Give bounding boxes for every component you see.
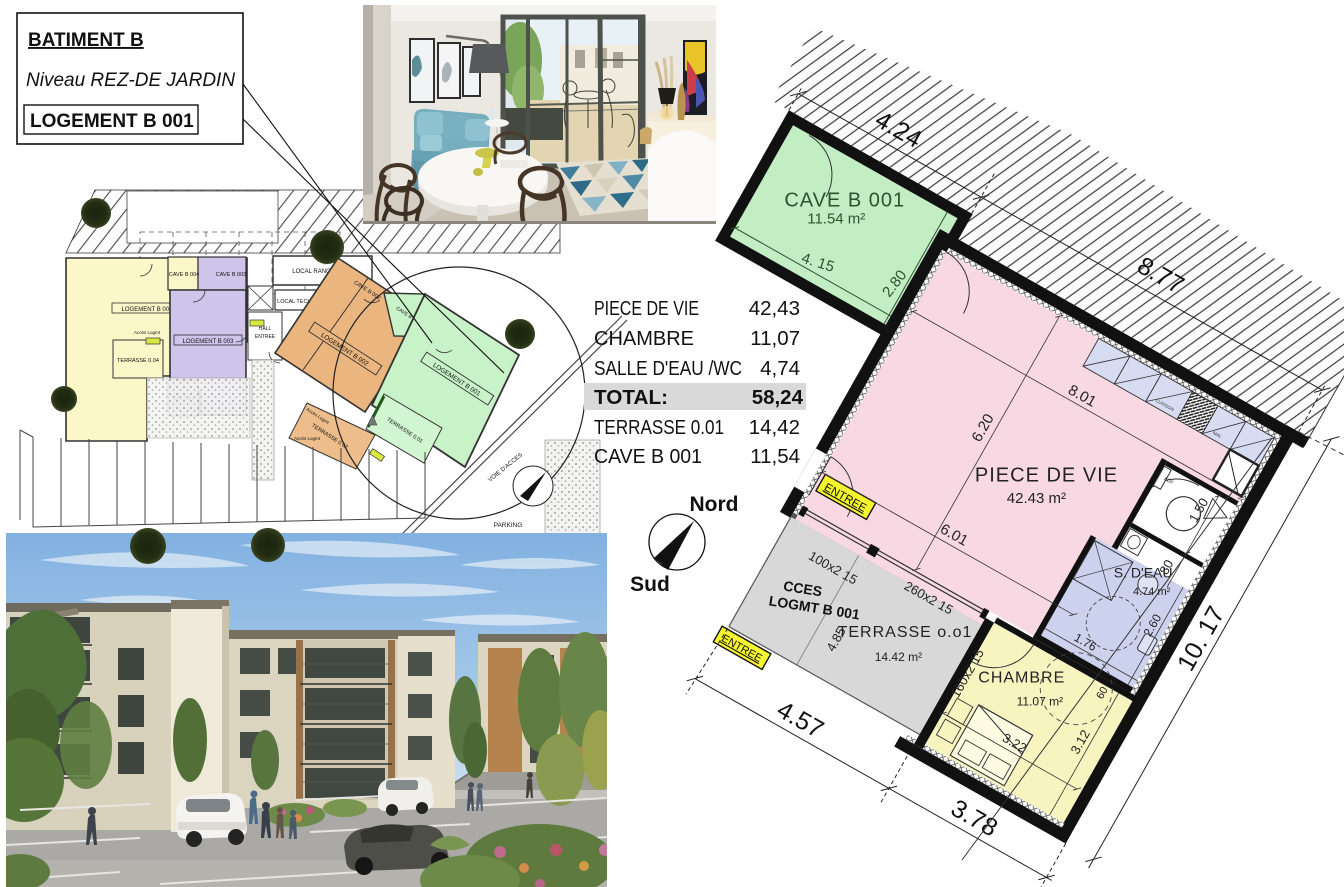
svg-text:Accès Logmt: Accès Logmt bbox=[134, 330, 161, 335]
svg-text:Accès Logmt: Accès Logmt bbox=[294, 436, 321, 441]
svg-text:14,42: 14,42 bbox=[749, 416, 800, 439]
svg-text:4.57: 4.57 bbox=[772, 696, 828, 744]
svg-text:11.54 m²: 11.54 m² bbox=[807, 210, 865, 227]
svg-text:Sud: Sud bbox=[630, 573, 670, 596]
svg-text:CHAMBRE: CHAMBRE bbox=[594, 327, 694, 350]
svg-text:Nord: Nord bbox=[690, 493, 739, 516]
svg-text:TERRASSE o.o1: TERRASSE o.o1 bbox=[838, 624, 973, 641]
svg-text:14.42 m²: 14.42 m² bbox=[875, 650, 922, 664]
svg-text:PARKING: PARKING bbox=[494, 522, 523, 529]
svg-text:LOGEMENT B 003: LOGEMENT B 003 bbox=[183, 339, 235, 345]
svg-text:LOGEMENT B 001: LOGEMENT B 001 bbox=[30, 111, 194, 132]
svg-text:BATIMENT B: BATIMENT B bbox=[28, 30, 144, 51]
svg-text:11,07: 11,07 bbox=[750, 327, 800, 350]
svg-text:CAVE B 001: CAVE B 001 bbox=[594, 445, 702, 468]
svg-text:LOGEMENT B 004: LOGEMENT B 004 bbox=[122, 307, 174, 313]
svg-text:CAVE B 001: CAVE B 001 bbox=[784, 189, 905, 211]
svg-text:ENTREE: ENTREE bbox=[255, 334, 276, 340]
svg-text:42,43: 42,43 bbox=[749, 297, 800, 320]
svg-text:PIECE DE VIE: PIECE DE VIE bbox=[975, 464, 1118, 486]
svg-text:Niveau REZ-DE JARDIN: Niveau REZ-DE JARDIN bbox=[26, 70, 235, 91]
svg-text:4,74: 4,74 bbox=[760, 357, 800, 380]
svg-text:CAVE B 004: CAVE B 004 bbox=[169, 272, 199, 278]
svg-text:CHAMBRE: CHAMBRE bbox=[978, 669, 1065, 686]
svg-text:CAVE B 003: CAVE B 003 bbox=[216, 272, 246, 278]
svg-text:11.07 m²: 11.07 m² bbox=[1017, 694, 1063, 708]
svg-text:4.74 m²: 4.74 m² bbox=[1133, 586, 1171, 598]
svg-text:TERRASSE 0.01: TERRASSE 0.01 bbox=[594, 416, 724, 439]
svg-text:42.43 m²: 42.43 m² bbox=[1007, 490, 1066, 507]
svg-text:TOTAL:: TOTAL: bbox=[594, 386, 668, 409]
svg-text:TERRASSE 0.04: TERRASSE 0.04 bbox=[117, 358, 159, 364]
svg-text:PIECE DE VIE: PIECE DE VIE bbox=[594, 297, 699, 320]
svg-text:SALLE D'EAU /WC: SALLE D'EAU /WC bbox=[594, 357, 742, 380]
svg-text:HALL: HALL bbox=[259, 326, 272, 332]
svg-text:11,54: 11,54 bbox=[750, 445, 800, 468]
svg-text:58,24: 58,24 bbox=[752, 386, 804, 409]
